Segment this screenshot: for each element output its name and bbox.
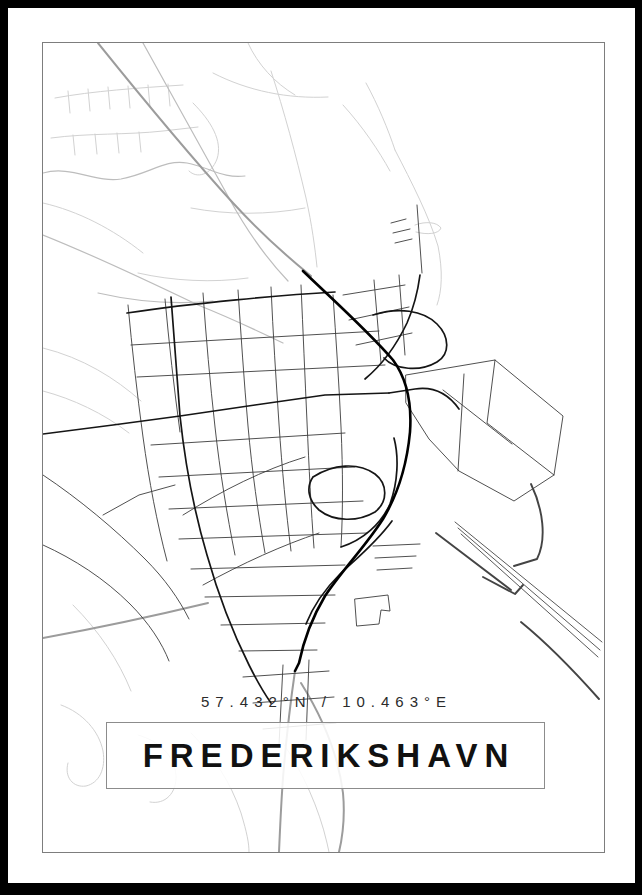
- road-path: [401, 516, 449, 539]
- city-name-box: FREDERIKSHAVN: [106, 722, 545, 789]
- road-path: [271, 287, 291, 551]
- city-name-label: FREDERIKSHAVN: [143, 737, 516, 775]
- road-path: [168, 84, 170, 106]
- road-path: [171, 297, 271, 703]
- road-path: [521, 622, 599, 699]
- road-path: [487, 360, 554, 475]
- road-path: [138, 273, 248, 281]
- road-path: [417, 205, 422, 273]
- road-path: [103, 485, 175, 515]
- road-path: [271, 71, 317, 267]
- road-path: [139, 132, 141, 152]
- road-path: [203, 293, 235, 555]
- road-path: [137, 365, 385, 377]
- road-path: [391, 219, 406, 223]
- road-path: [393, 229, 410, 233]
- map-panel: 57.432°N / 10.463°E FREDERIKSHAVN: [42, 42, 605, 853]
- road-path: [355, 595, 390, 626]
- road-path: [169, 501, 363, 509]
- road-path: [461, 534, 598, 657]
- road-path: [395, 239, 412, 243]
- road-path: [343, 105, 390, 171]
- road-path: [73, 135, 75, 155]
- road-path: [205, 595, 335, 597]
- road-path: [95, 134, 97, 154]
- coordinates-label: 57.432°N / 10.463°E: [43, 693, 604, 710]
- road-path: [191, 208, 305, 213]
- road-path: [43, 475, 189, 619]
- road-path: [399, 275, 405, 355]
- road-path: [203, 533, 319, 585]
- road-path: [455, 522, 602, 642]
- road-path: [117, 133, 119, 153]
- road-path: [375, 556, 416, 558]
- road-path: [248, 43, 295, 95]
- road-path: [43, 203, 143, 253]
- road-path: [238, 290, 265, 553]
- road-path: [514, 484, 543, 566]
- road-path: [88, 89, 90, 111]
- road-path: [443, 390, 512, 444]
- road-path: [179, 533, 367, 539]
- map-poster: 57.432°N / 10.463°E FREDERIKSHAVN: [0, 0, 642, 895]
- road-path: [61, 705, 104, 786]
- road-path: [151, 433, 345, 445]
- road-path: [309, 466, 385, 519]
- road-path: [301, 285, 314, 548]
- road-path: [43, 348, 141, 401]
- road-path: [239, 650, 317, 651]
- road-path: [373, 544, 420, 546]
- road-path: [374, 280, 381, 363]
- road-path: [458, 528, 600, 650]
- road-path: [43, 393, 389, 434]
- road-path: [98, 293, 213, 303]
- road-path: [43, 391, 129, 433]
- road-path: [43, 235, 283, 343]
- road-path: [55, 85, 183, 98]
- road-path: [68, 91, 70, 113]
- road-path: [243, 671, 329, 677]
- road-path: [483, 577, 523, 594]
- road-path: [191, 565, 345, 569]
- road-path: [458, 374, 464, 471]
- road-path: [341, 438, 397, 547]
- road-path: [343, 285, 405, 295]
- road-path: [73, 605, 131, 691]
- road-path: [377, 568, 412, 570]
- road-path: [213, 73, 328, 97]
- road-path: [406, 360, 563, 501]
- road-path: [98, 43, 311, 276]
- road-path: [389, 388, 459, 409]
